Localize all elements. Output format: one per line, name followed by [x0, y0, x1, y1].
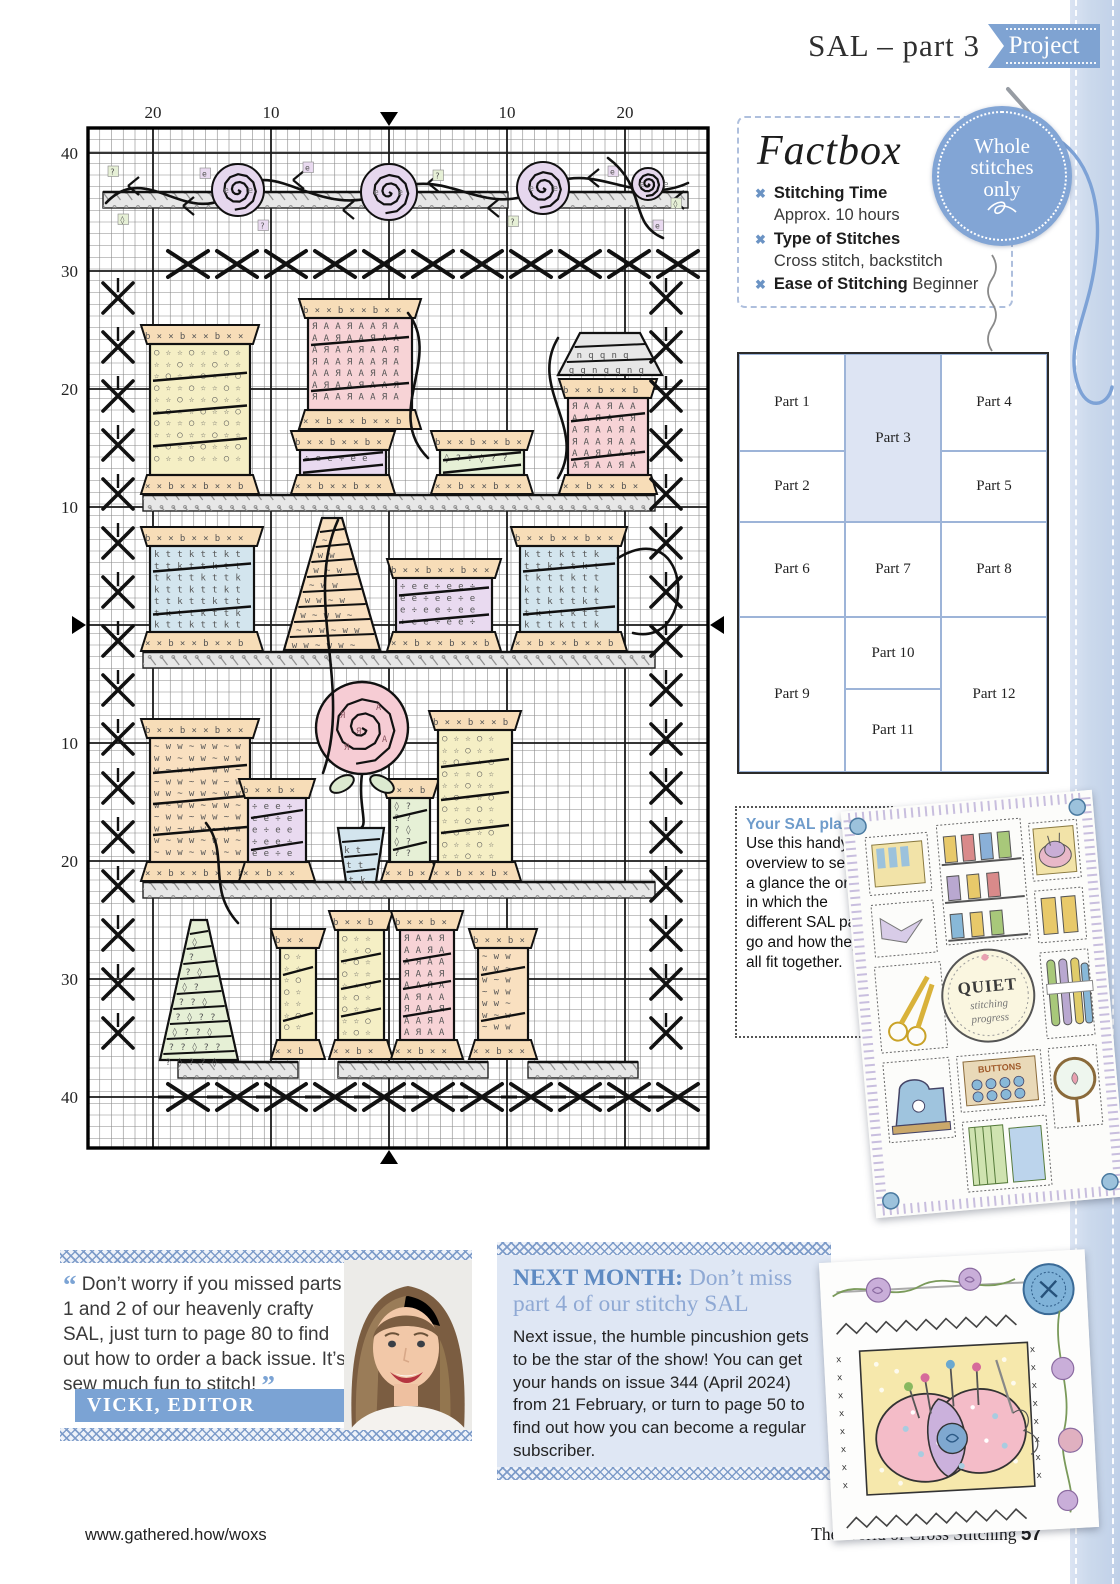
factbox-item-label: Ease of Stitching [774, 275, 908, 293]
factbox-item-label: Type of Stitches [774, 230, 900, 248]
svg-text:ee÷e: ee÷e [252, 849, 298, 859]
svg-text:x: x [1036, 1471, 1043, 1481]
svg-text:AЯAA: AЯAA [404, 1028, 450, 1038]
svg-text:○☆☆: ○☆☆ [342, 934, 377, 944]
parts-grid-cell: Part 8 [941, 522, 1047, 617]
svg-text:kttkttk: kttkttk [524, 621, 605, 631]
svg-text:Я: Я [356, 727, 361, 737]
factbox-item-label: Stitching Time [774, 184, 887, 202]
factbox-item-value: Approx. 10 hours [774, 204, 900, 226]
svg-text:b××: b×× [275, 936, 310, 946]
svg-text:20: 20 [617, 103, 634, 122]
svg-text:w~ww~ww~: w~ww~ww~ [154, 836, 247, 846]
svg-text:☆○☆: ☆○☆ [342, 1028, 377, 1038]
badge-line: Whole [974, 136, 1030, 157]
svg-text:?◊??◊: ?◊??◊ [165, 1057, 223, 1068]
svg-text:e: e [610, 168, 615, 177]
svg-text:~ww: ~ww [482, 987, 517, 997]
svg-text:e e: e e [639, 180, 675, 190]
svg-text:ЯAAЯAAЯA: ЯAAЯAAЯA [312, 357, 405, 367]
editor-quote: “ Don’t worry if you missed parts 1 and … [63, 1272, 348, 1397]
svg-text:b××b××b××: b××b××b×× [145, 726, 250, 736]
svg-text:○☆☆: ○☆☆ [342, 969, 377, 979]
svg-text:××b××b×: ××b××b× [433, 869, 514, 879]
svg-text:○☆: ○☆ [284, 1023, 307, 1033]
sal-parts-overview-grid: Part 1Part 2Part 6Part 9Part 3Part 7Part… [737, 352, 1049, 774]
editor-portrait-illustration [344, 1260, 472, 1430]
svg-text:e: e [305, 164, 310, 173]
svg-text:e e: e e [224, 186, 260, 196]
sampler-illustration: QUIET stitching progress BUTTONS [841, 790, 1120, 1218]
svg-text:○☆☆○☆: ○☆☆○☆ [442, 805, 500, 815]
svg-text:○☆☆○☆: ○☆☆○☆ [442, 734, 500, 744]
svg-text:○☆: ○☆ [284, 987, 307, 997]
parts-grid-cell: Part 1 [739, 354, 845, 451]
svg-text:x: x [838, 1391, 845, 1401]
svg-text:b××b××b: b××b××b [433, 718, 514, 728]
svg-text:10: 10 [499, 103, 516, 122]
parts-grid-cell: Part 4 [941, 354, 1047, 451]
svg-text:b××b××b: b××b××b [563, 386, 644, 396]
svg-text:x: x [1031, 1381, 1038, 1391]
parts-grid-cell: Part 12 [941, 617, 1047, 772]
svg-text:??: ?? [394, 849, 417, 859]
svg-text:~ww~ww~w: ~ww~ww~w [154, 742, 247, 752]
svg-text:Я: Я [340, 711, 345, 721]
svg-text:◊: ◊ [673, 200, 678, 209]
cross-stitch-chart: ?ee?e◊◊??ee ee ee ee eb××b××b××××b××b××b… [40, 95, 730, 1181]
pincushion-photo: xxxx xxxx xxxx xxxx [819, 1249, 1099, 1541]
svg-text:××b×: ××b× [385, 869, 431, 879]
svg-text:x: x [840, 1445, 847, 1455]
open-quote-icon: “ [63, 1270, 77, 1300]
svg-text:tk: tk [349, 876, 372, 886]
magazine-page: SAL – part 3 Project ?ee?e◊◊??ee ee ee e… [0, 0, 1120, 1584]
svg-text:××b××b××b: ××b××b××b [515, 639, 620, 649]
svg-text:?◊: ?◊ [394, 825, 417, 836]
svg-text:☆☆: ☆☆ [284, 999, 307, 1009]
svg-text:b××b××b××: b××b××b×× [391, 566, 496, 576]
svg-text:b××b××b××: b××b××b×× [515, 534, 620, 544]
svg-text:ЯAAЯAA: ЯAAЯAA [572, 437, 642, 447]
svg-text:qqnqqnq: qqnqqnq [569, 366, 650, 376]
svg-text:b××b××b××: b××b××b×× [145, 534, 250, 544]
svg-text:○☆☆○☆☆○☆: ○☆☆○☆☆○☆ [154, 454, 247, 464]
svg-text:tkttktt: tkttktt [524, 574, 605, 584]
svg-text:☆☆○☆☆○☆☆: ☆☆○☆☆○☆☆ [154, 360, 247, 370]
svg-text:b××b×: b××b× [395, 918, 453, 928]
svg-text:AЯAAЯA: AЯAAЯA [572, 461, 642, 471]
svg-text:AAЯAAЯAA: AAЯAAЯAA [312, 369, 405, 379]
svg-text:40: 40 [61, 144, 78, 163]
svg-text:x: x [842, 1481, 849, 1491]
svg-text:b××b: b××b [333, 918, 379, 928]
svg-text:~ww~ww~w: ~ww~ww~w [154, 813, 247, 823]
svg-text:ttkttkt: ttkttkt [524, 597, 605, 607]
svg-text:AЯAAЯAAЯ: AЯAAЯAAЯ [312, 346, 405, 356]
svg-text:x: x [840, 1427, 847, 1437]
svg-text:☆○☆☆○☆☆○: ☆○☆☆○☆☆○ [154, 442, 247, 452]
svg-text:10: 10 [61, 498, 78, 517]
svg-text:e÷ee÷ee: e÷ee÷ee [400, 606, 481, 616]
svg-text:~ww: ~ww [482, 1023, 517, 1033]
svg-text:x: x [1035, 1453, 1042, 1463]
pincushion-illustration: xxxx xxxx xxxx xxxx [819, 1249, 1099, 1541]
svg-text:ww~ww~: ww~ww~ [292, 641, 362, 651]
svg-text:kttkttkt: kttkttkt [154, 585, 247, 595]
footer-url: www.gathered.how/woxs [85, 1526, 267, 1545]
svg-text:?: ? [189, 953, 201, 963]
svg-text:ЯAAЯAA: ЯAAЯAA [572, 402, 642, 412]
flourish-icon [985, 200, 1019, 216]
editor-quote-text: Don’t worry if you missed parts 1 and 2 … [63, 1274, 346, 1395]
svg-text:?: ? [110, 168, 115, 177]
svg-text:Я: Я [344, 743, 349, 753]
pincushion-motif [1033, 826, 1077, 875]
svg-text:××b××b××: ××b××b×× [295, 482, 388, 492]
svg-text:x: x [837, 1373, 844, 1383]
svg-text:AAЯA: AAЯA [404, 1016, 450, 1026]
svg-text:?: ? [260, 222, 265, 231]
sal-plan-title: Your SAL plan: [746, 816, 857, 833]
parts-grid-cell: Part 5 [941, 451, 1047, 522]
next-month-box: NEXT MONTH: Don’t miss part 4 of our sti… [497, 1255, 831, 1467]
svg-text:××b: ××b [275, 1047, 310, 1057]
svg-text:w~w: w~w [482, 976, 517, 986]
cross-bullet-icon: ✖ [755, 276, 766, 295]
svg-text:××b×: ××b× [333, 1047, 379, 1057]
cross-bullet-icon: ✖ [755, 231, 766, 273]
parts-grid-cell: Part 10 [845, 617, 941, 689]
svg-text:b××b××b××: b××b××b×× [303, 306, 408, 316]
sampler-photo: QUIET stitching progress BUTTONS [841, 790, 1120, 1218]
svg-text:A: A [376, 703, 381, 713]
parts-grid-cell: Part 3 [845, 354, 941, 522]
factbox-item-value: Beginner [912, 275, 978, 293]
svg-text:b××b××b××: b××b××b×× [145, 332, 250, 342]
whole-stitches-badge: Whole stitches only [932, 106, 1072, 246]
editor-attribution: VICKI, EDITOR [87, 1394, 255, 1417]
svg-text:30: 30 [61, 970, 78, 989]
svg-text:AЯAA: AЯAA [404, 993, 450, 1003]
svg-text:x: x [1029, 1345, 1036, 1355]
svg-text:10: 10 [263, 103, 280, 122]
svg-text:○☆☆○☆☆○☆: ○☆☆○☆☆○☆ [154, 419, 247, 429]
badge-line: stitches [971, 157, 1034, 178]
svg-text:ЯAAЯAAЯA: ЯAAЯAAЯA [312, 393, 405, 403]
svg-text:☆☆○: ☆☆○ [342, 1016, 377, 1026]
svg-text:◊?: ◊? [394, 801, 417, 812]
editor-attribution-bar: VICKI, EDITOR [75, 1389, 345, 1422]
svg-text:☆☆○☆☆: ☆☆○☆☆ [442, 852, 500, 862]
svg-text:☆☆○☆☆: ☆☆○☆☆ [442, 816, 500, 826]
svg-text:kttkttkt: kttkttkt [154, 621, 247, 631]
badge-line: only [983, 179, 1020, 200]
svg-text:××b××: ××b×× [473, 1047, 531, 1057]
svg-text:○☆: ○☆ [284, 952, 307, 962]
svg-text:÷ee÷: ÷ee÷ [252, 802, 298, 812]
factbox-item-value: Cross stitch, backstitch [774, 250, 943, 272]
svg-text:b××b×: b××b× [243, 786, 301, 796]
svg-text:kttkttk: kttkttk [524, 550, 605, 560]
svg-text:?: ? [510, 218, 515, 227]
svg-text:b××b××b×: b××b××b× [295, 438, 388, 448]
svg-text:○☆☆○☆: ○☆☆○☆ [442, 769, 500, 779]
stitch-chart-svg: ?ee?e◊◊??ee ee ee ee eb××b××b××××b××b××b… [40, 95, 730, 1181]
svg-text:××b××b×: ××b××b× [563, 482, 644, 492]
svg-text:tkttkttk: tkttkttk [154, 574, 247, 584]
svg-text:e: e [202, 170, 207, 179]
factbox-item-ease: ✖ Ease of Stitching Beginner [755, 273, 997, 295]
svg-text:30: 30 [61, 262, 78, 281]
svg-text:÷ee÷ee÷: ÷ee÷ee÷ [400, 582, 481, 592]
svg-text:b××b××b×: b××b××b× [435, 438, 528, 448]
svg-text:ЯAAЯ: ЯAAЯ [404, 934, 450, 944]
project-badge-label: Project [1009, 32, 1080, 60]
svg-text:20: 20 [145, 103, 162, 122]
svg-text:××b××b××b: ××b××b××b [391, 639, 496, 649]
next-month-heading: NEXT MONTH: Don’t miss part 4 of our sti… [513, 1265, 815, 1318]
svg-text:40: 40 [61, 1088, 78, 1107]
svg-text:××b××b××: ××b××b×× [435, 482, 528, 492]
crosshatch-border [497, 1242, 831, 1255]
svg-text:☆○☆: ☆○☆ [342, 993, 377, 1003]
project-badge: Project [988, 24, 1100, 68]
svg-text:ww~: ww~ [482, 999, 517, 1009]
svg-text:××b××b××b: ××b××b××b [145, 639, 250, 649]
svg-text:☆☆○☆☆: ☆☆○☆☆ [442, 781, 500, 791]
svg-text:☆☆○☆☆: ☆☆○☆☆ [442, 746, 500, 756]
svg-text:ttkttktt: ttkttktt [154, 597, 247, 607]
next-month-body: Next issue, the humble pincushion gets t… [513, 1326, 813, 1464]
svg-text:x: x [1033, 1417, 1040, 1427]
svg-text:××b××: ××b×× [395, 1047, 453, 1057]
svg-text:20: 20 [61, 380, 78, 399]
svg-text:☆☆○☆☆○☆☆: ☆☆○☆☆○☆☆ [154, 395, 247, 405]
svg-text:e e: e e [529, 184, 565, 194]
svg-text:?: ? [435, 172, 440, 181]
parts-grid-cell: Part 11 [845, 689, 941, 772]
svg-text:x: x [1030, 1363, 1037, 1373]
parts-grid-cell: Part 6 [739, 522, 845, 617]
svg-text:10: 10 [61, 734, 78, 753]
svg-text:××b××b××b: ××b××b××b [145, 869, 250, 879]
svg-text:~ww: ~ww [482, 952, 517, 962]
svg-text:20: 20 [61, 852, 78, 871]
page-title: SAL – part 3 [808, 28, 980, 64]
svg-text:~ww~ww~w: ~ww~ww~w [154, 848, 247, 858]
svg-text:◊: ◊ [120, 216, 125, 225]
parts-grid-cell: Part 7 [845, 522, 941, 617]
svg-text:e÷ee: e÷ee [252, 826, 298, 836]
svg-text:e e: e e [374, 188, 410, 198]
svg-text:kttkttk: kttkttk [524, 585, 605, 595]
next-month-lead: NEXT MONTH: [513, 1265, 683, 1291]
crosshatch-border [497, 1467, 831, 1480]
svg-text:x: x [836, 1355, 843, 1365]
editor-photo [344, 1260, 472, 1430]
svg-text:b××b×: b××b× [473, 936, 531, 946]
svg-text:○☆☆○☆☆○☆: ○☆☆○☆☆○☆ [154, 348, 247, 358]
svg-text:××b××b××b: ××b××b××b [145, 482, 250, 492]
svg-text:A: A [382, 735, 387, 745]
factbox-item-type-of-stitches: ✖ Type of Stitches Cross stitch, backsti… [755, 228, 997, 273]
svg-text:x: x [839, 1409, 846, 1419]
svg-text:××b××b××b: ××b××b××b [303, 417, 408, 427]
svg-text:☆○: ☆○ [284, 976, 307, 986]
parts-grid-cell: Part 2 [739, 451, 845, 522]
svg-text:ЯAAЯAAЯA: ЯAAЯAAЯA [312, 322, 405, 332]
svg-text:x: x [841, 1463, 848, 1473]
cross-bullet-icon: ✖ [755, 185, 766, 227]
svg-text:x: x [1032, 1399, 1039, 1409]
svg-text:AЯAAЯA: AЯAAЯA [572, 426, 642, 436]
svg-text:○☆☆○☆: ○☆☆○☆ [442, 840, 500, 850]
svg-text:e: e [655, 222, 660, 231]
svg-text:○☆☆○☆☆○☆: ○☆☆○☆☆○☆ [154, 383, 247, 393]
buttons-card-motif: BUTTONS [963, 1056, 1039, 1106]
svg-text:~ww~ww~w: ~ww~ww~w [154, 777, 247, 787]
svg-text:ЯAAЯ: ЯAAЯ [404, 969, 450, 979]
parts-grid-cell: Part 9 [739, 617, 845, 772]
svg-text:ww~ww~ww: ww~ww~ww [154, 754, 247, 764]
svg-text:kttkttkt: kttkttkt [154, 550, 247, 560]
svg-text:××b××: ××b×× [243, 869, 301, 879]
